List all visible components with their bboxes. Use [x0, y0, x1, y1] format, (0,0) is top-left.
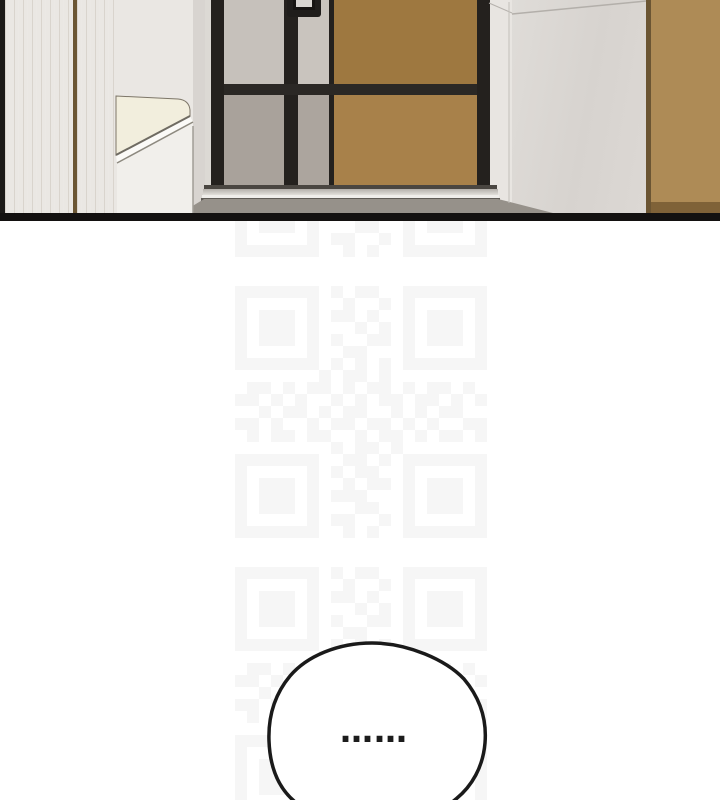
panel-bottom-border	[0, 213, 720, 221]
comic-panel-entryway	[0, 0, 720, 221]
qr-watermark-tile	[235, 286, 487, 538]
speech-bubble-text: ……	[274, 700, 474, 760]
marble-seam-line	[512, 1, 646, 14]
webtoon-page: ……	[0, 0, 720, 800]
bench-and-seam-linework	[0, 0, 720, 213]
